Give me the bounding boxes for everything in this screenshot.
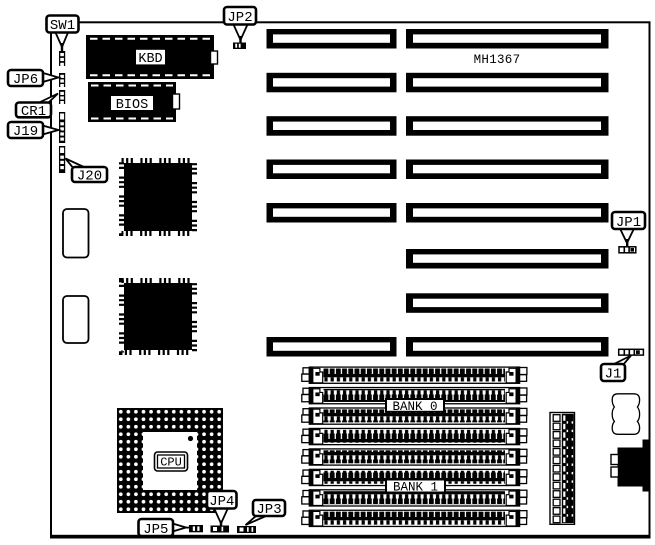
svg-text:BIOS: BIOS [116, 98, 148, 113]
svg-text:BANK 1: BANK 1 [393, 481, 438, 495]
svg-text:JP3: JP3 [256, 502, 281, 518]
svg-text:JP1: JP1 [616, 215, 641, 231]
svg-text:J19: J19 [13, 124, 38, 140]
svg-text:JP4: JP4 [209, 494, 234, 510]
svg-text:J20: J20 [77, 169, 102, 185]
svg-text:JP2: JP2 [227, 10, 252, 26]
svg-text:KBD: KBD [138, 52, 162, 67]
svg-text:JP6: JP6 [13, 72, 38, 88]
svg-text:CR1: CR1 [21, 104, 46, 120]
svg-text:SW1: SW1 [50, 18, 75, 34]
svg-text:BANK 0: BANK 0 [392, 400, 437, 414]
svg-text:MH1367: MH1367 [474, 53, 521, 67]
svg-text:JP5: JP5 [143, 522, 168, 538]
svg-text:CPU: CPU [160, 456, 182, 470]
svg-text:J1: J1 [605, 367, 622, 383]
